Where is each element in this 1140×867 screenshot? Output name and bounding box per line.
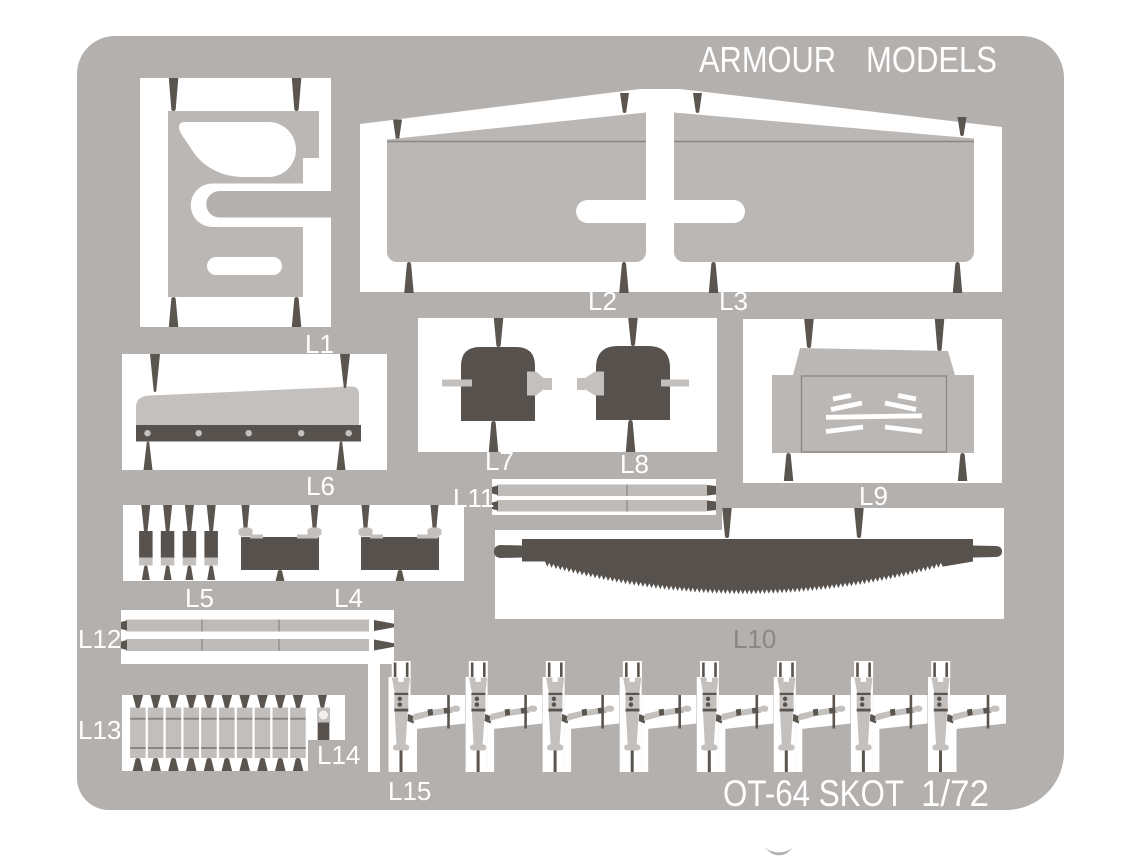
svg-text:L12: L12 [78,624,121,654]
svg-text:L15: L15 [388,776,431,806]
svg-text:L4: L4 [334,583,363,613]
svg-text:L10: L10 [733,624,776,654]
svg-text:L13: L13 [78,715,121,745]
svg-text:L5: L5 [185,583,214,613]
svg-text:L3: L3 [719,286,748,316]
svg-text:L2: L2 [588,286,617,316]
svg-text:L9: L9 [859,481,888,511]
svg-text:L7: L7 [485,446,514,476]
svg-text:L14: L14 [317,740,360,770]
svg-text:L11: L11 [453,483,494,513]
svg-text:L6: L6 [306,471,335,501]
svg-text:OT-64 SKOT1/72: OT-64 SKOT1/72 [723,773,989,814]
svg-text:L8: L8 [620,449,649,479]
